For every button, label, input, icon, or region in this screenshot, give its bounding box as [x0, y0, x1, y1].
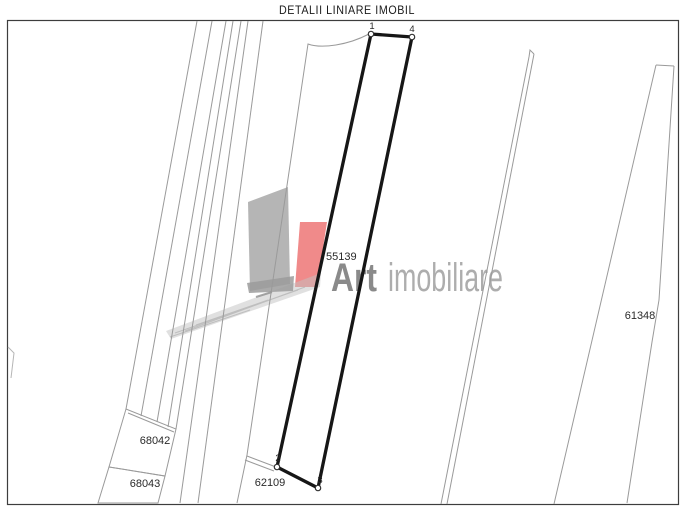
parcel-55139-label: 55139 — [326, 251, 357, 263]
vertex-2-label: 2 — [275, 453, 280, 464]
watermark-gray-block — [248, 187, 290, 291]
parcel-68043-label: 68043 — [130, 478, 161, 490]
vertex-3-marker — [315, 485, 320, 490]
vertex-4-marker — [409, 34, 414, 39]
cadastral-map-canvas: Art imobiliare — [0, 0, 688, 514]
vertex-2-marker — [274, 464, 279, 469]
vertex-4-label: 4 — [409, 24, 414, 35]
vertex-1-label: 1 — [369, 21, 374, 32]
vertex-3-label: 3 — [317, 475, 322, 486]
page-title: DETALII LINIARE IMOBIL — [279, 5, 415, 17]
parcel-62109-label: 62109 — [255, 477, 286, 489]
parcel-68042-label: 68042 — [140, 435, 171, 447]
vertex-1-marker — [368, 31, 373, 36]
parcel-61348-label: 61348 — [625, 310, 656, 322]
cadastral-plan-page: Art imobiliare — [0, 0, 688, 514]
